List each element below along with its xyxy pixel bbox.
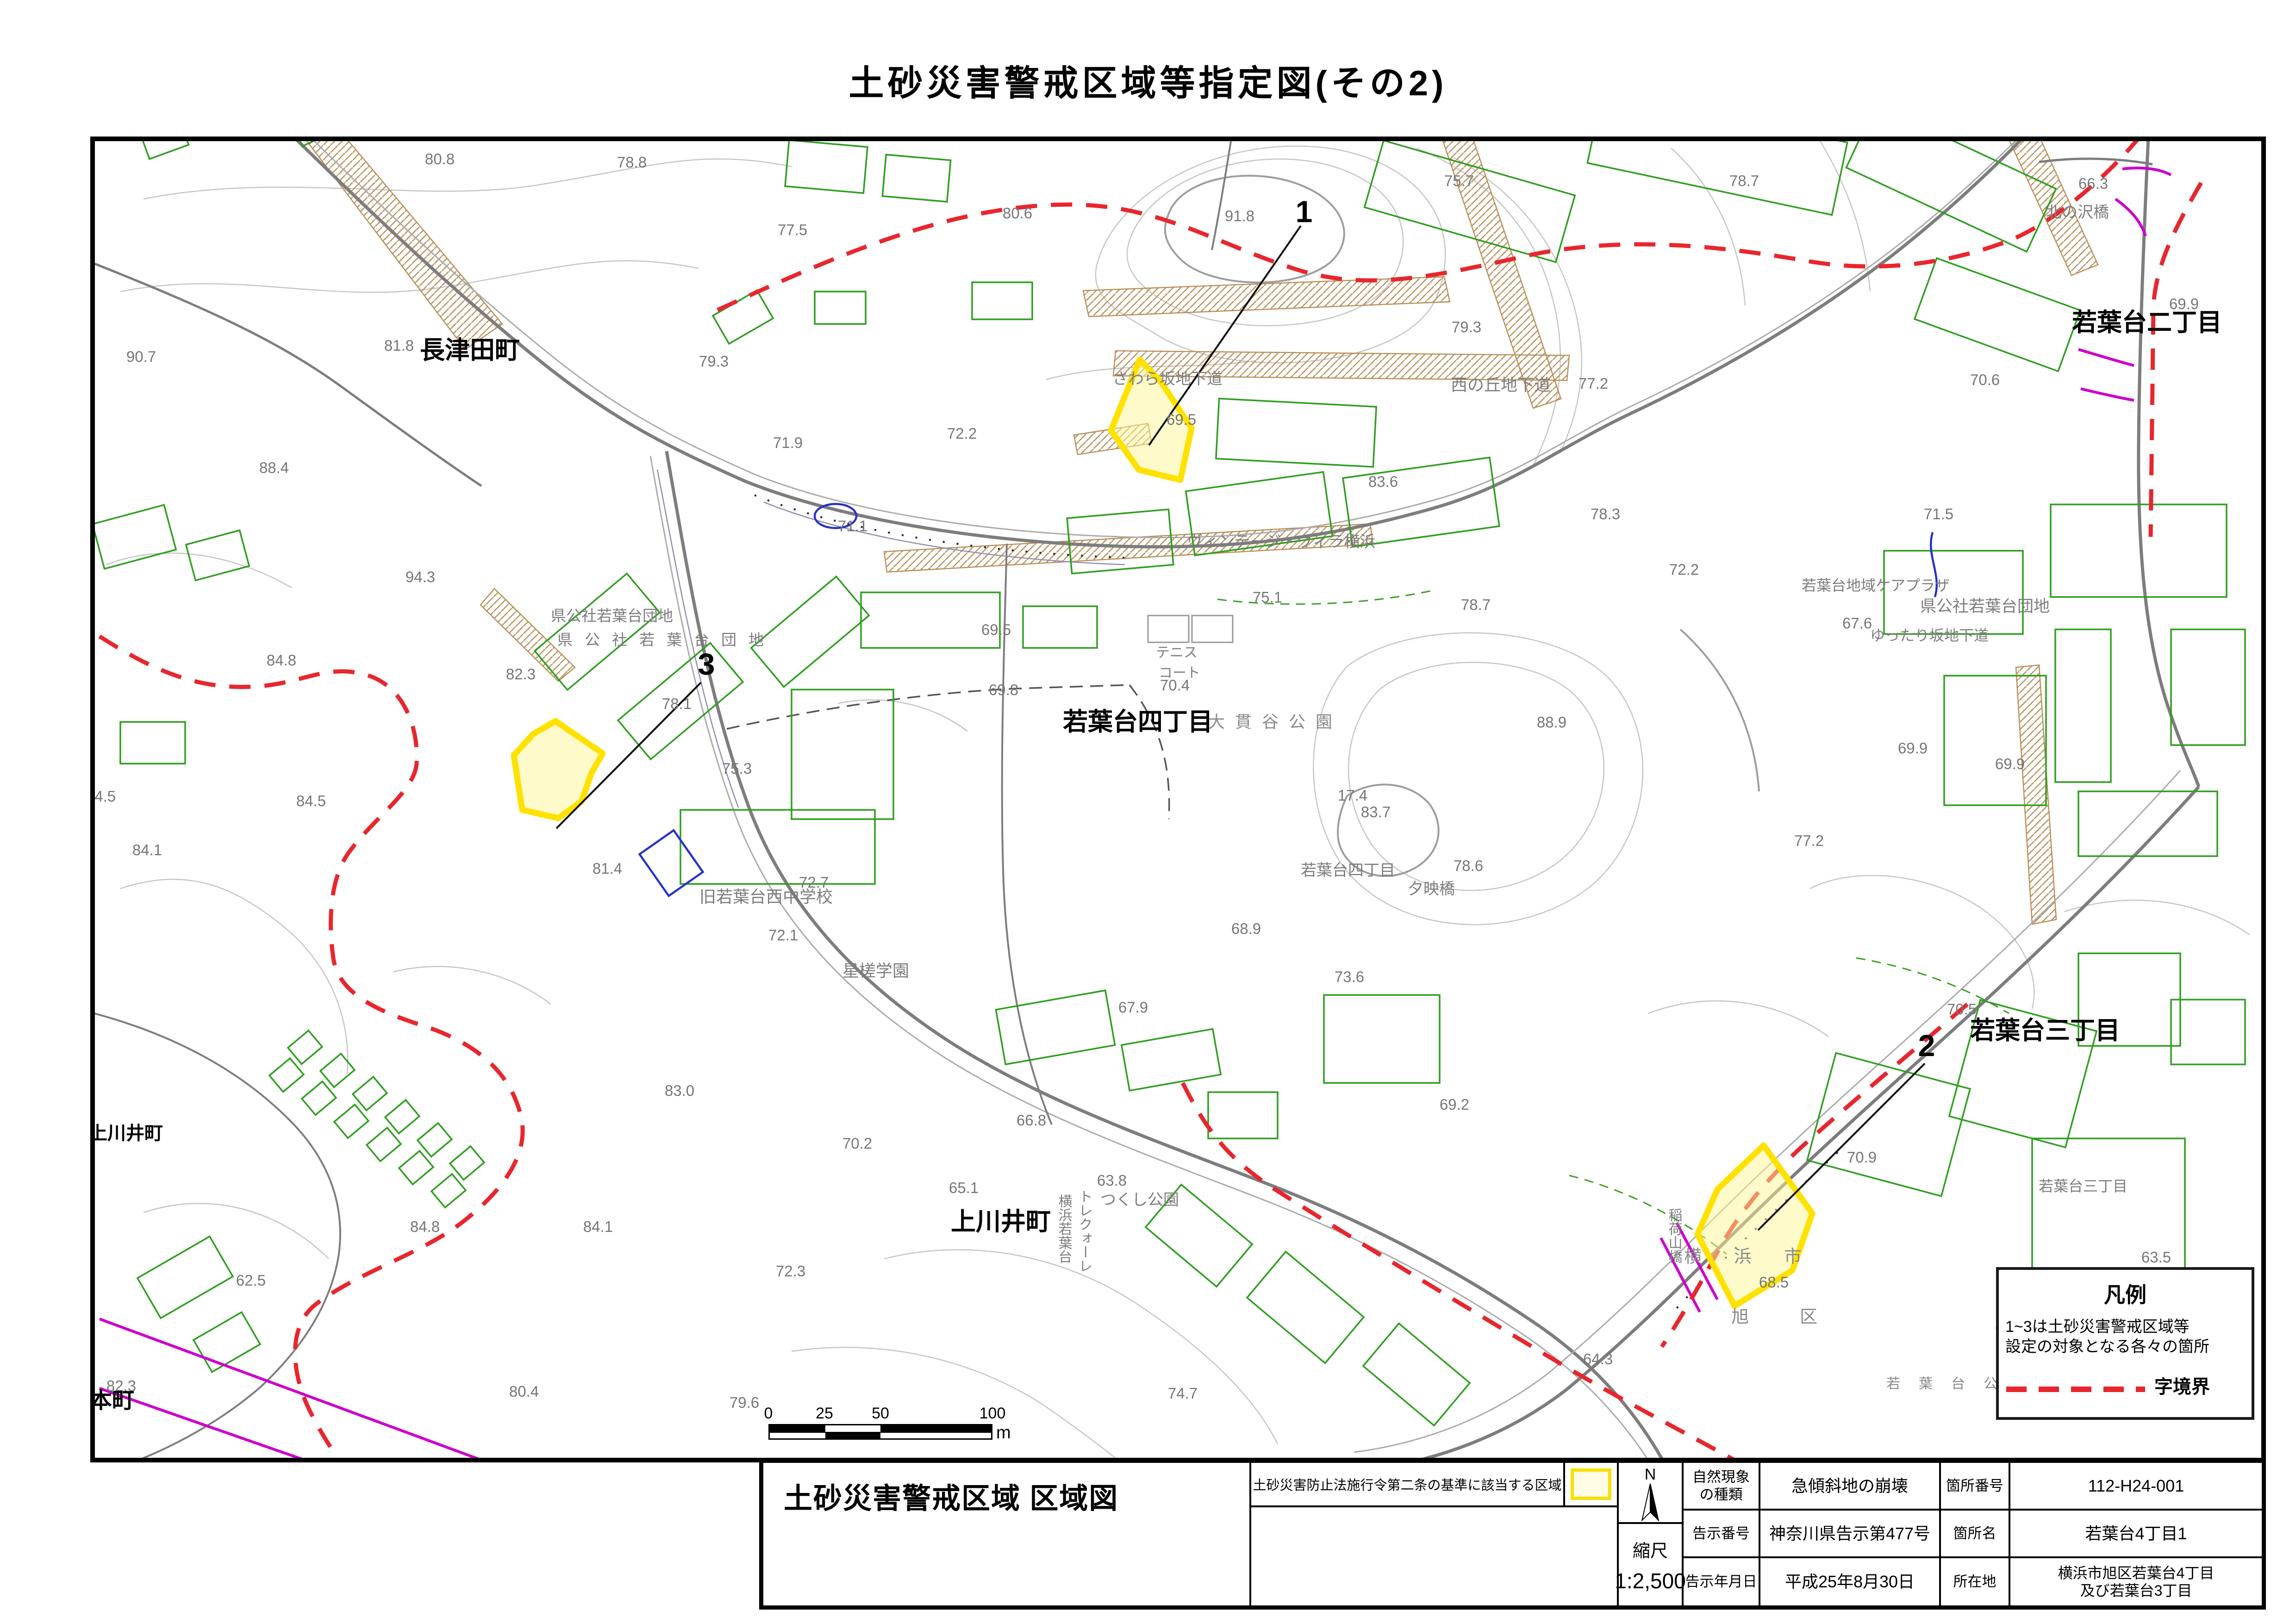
green-dashed-paths bbox=[1217, 590, 2009, 1254]
elevation-label: 75.3 bbox=[722, 760, 752, 777]
map-label: 県公社若葉台団地 bbox=[1920, 597, 2050, 616]
area-number: 3 bbox=[698, 647, 715, 681]
elevation-label: 70.9 bbox=[1847, 1149, 1877, 1166]
scale-unit: m bbox=[996, 1423, 1011, 1443]
legend-box: 凡例 1~3は土砂災害警戒区域等 設定の対象となる各々の箇所 字境界 bbox=[1996, 1267, 2254, 1420]
elevation-label: 84.1 bbox=[132, 841, 162, 858]
elevation-label: 78.7 bbox=[1461, 596, 1491, 613]
scale-tick-0: 0 bbox=[764, 1405, 773, 1423]
elevation-label: 84.8 bbox=[410, 1218, 440, 1235]
map-label: 夕映橋 bbox=[1408, 880, 1455, 898]
scale-tick-100: 100 bbox=[980, 1405, 1006, 1423]
elevation-label: 83.7 bbox=[1361, 803, 1391, 821]
map-label: 若葉台三丁目 bbox=[2039, 1178, 2128, 1194]
elevation-label: 81.4 bbox=[593, 860, 622, 877]
elevation-label: 79.3 bbox=[1452, 318, 1481, 336]
map-label: 県公社若葉台団地 bbox=[557, 631, 776, 648]
map-label: 長津田町 bbox=[420, 336, 520, 364]
scale-label: 縮尺 bbox=[1633, 1536, 1668, 1562]
elevation-label: 83.6 bbox=[1368, 473, 1398, 490]
elevation-label: 81.8 bbox=[384, 337, 414, 354]
map-label: トレクォーレ bbox=[1077, 1189, 1092, 1273]
map-label: 若葉台地域ケアプラザ bbox=[1802, 577, 1950, 594]
slope-hatch-bands bbox=[238, 141, 2098, 924]
map-label: 星槎学園 bbox=[842, 961, 909, 980]
elevation-label: 69.5 bbox=[1167, 411, 1196, 428]
warning-area-2 bbox=[1697, 1145, 1812, 1306]
map-label: 上川井町 bbox=[951, 1208, 1051, 1236]
elevation-label: 78.8 bbox=[617, 154, 647, 171]
scale-bar: 0 25 50 100 m bbox=[768, 1405, 1028, 1446]
elevation-label: 75.1 bbox=[1253, 589, 1282, 606]
legend-note: 1~3は土砂災害警戒区域等 設定の対象となる各々の箇所 bbox=[2005, 1317, 2252, 1356]
dashed-paths bbox=[727, 685, 1169, 819]
map-label: 県公社若葉台団地 bbox=[551, 607, 673, 624]
elevation-label: 94.3 bbox=[406, 568, 435, 585]
map-label: さわら坂地下道 bbox=[1112, 370, 1223, 388]
map-label: 卸本町 bbox=[95, 1388, 134, 1413]
elevation-label: 74.7 bbox=[1168, 1385, 1198, 1402]
map-label: ゆったり坂地下道 bbox=[1870, 627, 1989, 644]
map-label: 大貫谷公園 bbox=[1208, 712, 1342, 731]
tennis-court bbox=[1148, 616, 1233, 642]
row3-label2-cell: 所在地 bbox=[1939, 1558, 2009, 1605]
elevation-label: 80.6 bbox=[1003, 205, 1032, 222]
elevation-label: 80.8 bbox=[425, 150, 455, 168]
map-label: 稲荷山橋 bbox=[1666, 1208, 1683, 1263]
elevation-label: 91.8 bbox=[1225, 207, 1254, 224]
scale-tick-50: 50 bbox=[872, 1405, 889, 1423]
elevation-label: 67.9 bbox=[1118, 999, 1148, 1016]
elevation-label: 63.5 bbox=[2141, 1249, 2171, 1266]
elevation-label: 62.5 bbox=[236, 1272, 266, 1289]
map-label: 若葉台三丁目 bbox=[1970, 1017, 2120, 1045]
row1-value-cell: 急傾斜地の崩壊 bbox=[1759, 1463, 1939, 1511]
elevation-label: 79.3 bbox=[699, 353, 729, 370]
elevation-label: 68.9 bbox=[1231, 920, 1261, 937]
footer-table: 土砂災害警戒区域 区域図 土砂災害防止法施行令第二条の基準に該当する区域 N 縮… bbox=[759, 1459, 2266, 1610]
hazard-map-canvas: 80.878.877.590.781.879.380.691.875.778.7… bbox=[95, 141, 2261, 1458]
row3-value2-cell: 横浜市旭区若葉台4丁目 及び若葉台3丁目 bbox=[2009, 1558, 2262, 1605]
map-label: 若葉台四丁目 bbox=[1063, 708, 1213, 736]
elevation-label: 69.9 bbox=[1898, 740, 1928, 757]
map-label: テニス bbox=[1156, 645, 1198, 660]
boundary-line-sample bbox=[2006, 1387, 2145, 1392]
map-frame: 80.878.877.590.781.879.380.691.875.778.7… bbox=[90, 137, 2266, 1462]
elevation-label: 77.5 bbox=[778, 221, 807, 238]
water-features bbox=[640, 504, 1937, 896]
elevation-label: 75.7 bbox=[1444, 172, 1474, 189]
map-label: 若葉台四丁目 bbox=[1301, 862, 1395, 879]
warning-area-3 bbox=[514, 721, 603, 818]
page-title: 土砂災害警戒区域等指定図(その2) bbox=[0, 55, 2296, 106]
map-label: 若葉台二丁目 bbox=[2072, 309, 2222, 336]
map-doc-title: 土砂災害警戒区域 区域図 bbox=[763, 1463, 1249, 1517]
row2-value-cell: 神奈川県告示第477号 bbox=[1759, 1511, 1939, 1558]
map-label: 上川井町 bbox=[95, 1123, 163, 1144]
elevation-label: 70.6 bbox=[1970, 371, 2000, 388]
elevation-label: 84.1 bbox=[583, 1218, 613, 1235]
elevation-label: 88.4 bbox=[259, 459, 289, 476]
elevation-label: 66.8 bbox=[1017, 1112, 1046, 1129]
row3-label-cell: 告示年月日 bbox=[1682, 1558, 1759, 1605]
elevation-label: 64.3 bbox=[1583, 1350, 1613, 1368]
warning-area-symbol bbox=[1571, 1468, 1611, 1500]
contour-index-lines bbox=[1165, 176, 1759, 876]
north-cell: N bbox=[1617, 1463, 1682, 1522]
legend-title: 凡例 bbox=[1999, 1278, 2252, 1309]
elevation-label: 73.6 bbox=[1335, 968, 1364, 985]
elevation-label: 71.9 bbox=[773, 434, 803, 451]
boundary-line-label: 字境界 bbox=[2154, 1372, 2210, 1399]
elevation-label: 78.7 bbox=[1729, 172, 1759, 189]
map-label: 横浜若葉台 bbox=[1056, 1194, 1073, 1263]
elevation-label: 72.1 bbox=[768, 927, 798, 944]
map-label: 北の沢橋 bbox=[2046, 204, 2109, 221]
elevation-label: 69.8 bbox=[989, 681, 1018, 698]
area-number: 2 bbox=[1918, 1028, 1935, 1063]
elevation-label: 69.5 bbox=[981, 621, 1011, 638]
scale-bar-graphic bbox=[768, 1424, 992, 1440]
elevation-label: 84.8 bbox=[267, 652, 296, 669]
map-label: 西の丘地下道 bbox=[1451, 375, 1551, 394]
elevation-label: 71.1 bbox=[838, 517, 867, 535]
map-label: コート bbox=[1159, 665, 1200, 681]
elevation-label: 77.2 bbox=[1794, 832, 1824, 849]
elevation-label: 78.3 bbox=[1591, 505, 1620, 522]
elevation-label: 80.4 bbox=[509, 1383, 539, 1400]
elevation-label: 69.9 bbox=[1995, 755, 2025, 772]
elevation-label: 84.5 bbox=[95, 788, 116, 805]
criteria-cell: 土砂災害防止法施行令第二条の基準に該当する区域 bbox=[1249, 1463, 1563, 1507]
elevation-label: 17.4 bbox=[1338, 787, 1367, 804]
row1-label2-cell: 箇所番号 bbox=[1939, 1463, 2009, 1511]
map-doc-title-cell: 土砂災害警戒区域 区域図 bbox=[763, 1463, 1249, 1605]
area-number-labels: 123 bbox=[698, 194, 1935, 1063]
row1-label-cell: 自然現象 の種類 bbox=[1682, 1463, 1759, 1511]
scale-cell: 縮尺 1:2,500 bbox=[1617, 1522, 1682, 1605]
area-number: 1 bbox=[1296, 194, 1313, 229]
north-arrow-icon bbox=[1640, 1484, 1660, 1522]
warning-areas bbox=[514, 360, 1812, 1306]
elevation-label: 71.5 bbox=[1924, 505, 1953, 522]
scale-value: 1:2,500 bbox=[1615, 1568, 1685, 1593]
elevation-label: 72.2 bbox=[1669, 561, 1699, 578]
criteria-symbol-cell bbox=[1563, 1463, 1617, 1507]
elevation-label: 77.2 bbox=[1578, 375, 1608, 392]
map-label: つくし公園 bbox=[1100, 1191, 1179, 1209]
elevation-label: 78.6 bbox=[1454, 857, 1483, 874]
row2-value2-cell: 若葉台4丁目1 bbox=[2009, 1511, 2262, 1558]
elevation-label: 69.2 bbox=[1440, 1096, 1469, 1113]
elevation-label: 70.5 bbox=[1947, 1001, 1977, 1018]
elevation-label: 66.3 bbox=[2078, 175, 2108, 192]
elevation-label: 79.6 bbox=[730, 1394, 759, 1411]
elevation-label: 88.9 bbox=[1537, 714, 1566, 731]
scale-tick-25: 25 bbox=[816, 1405, 833, 1423]
elevation-label: 84.5 bbox=[296, 792, 326, 809]
elevation-label: 65.1 bbox=[949, 1179, 979, 1196]
elevation-label: 78.1 bbox=[662, 695, 692, 712]
row1-value2-cell: 112-H24-001 bbox=[2009, 1463, 2262, 1511]
elevation-label: 90.7 bbox=[126, 348, 156, 365]
row2-label-cell: 告示番号 bbox=[1682, 1511, 1759, 1558]
map-label: 旭区 bbox=[1731, 1307, 1868, 1327]
elevation-label: 70.2 bbox=[842, 1135, 872, 1152]
elevation-label: 63.8 bbox=[1097, 1172, 1127, 1189]
elevation-label: 72.2 bbox=[947, 425, 977, 442]
row3-value-cell: 平成25年8月30日 bbox=[1759, 1558, 1939, 1605]
empty-cell bbox=[1249, 1507, 1617, 1605]
elevation-label: 72.3 bbox=[776, 1262, 805, 1280]
elevation-label: 68.5 bbox=[1759, 1274, 1789, 1291]
north-label: N bbox=[1645, 1466, 1656, 1484]
map-label: 旧若葉台西中学校 bbox=[699, 887, 833, 906]
map-label: 横浜市 bbox=[1684, 1247, 1834, 1267]
boundary-lines bbox=[100, 141, 2201, 1458]
elevation-label: 82.3 bbox=[506, 665, 536, 683]
row2-label2-cell: 箇所名 bbox=[1939, 1511, 2009, 1558]
map-label: ヴィンテージ・ヴィラ横浜 bbox=[1187, 533, 1375, 551]
elevation-label: 67.6 bbox=[1842, 615, 1872, 632]
elevation-label: 83.0 bbox=[665, 1082, 694, 1099]
